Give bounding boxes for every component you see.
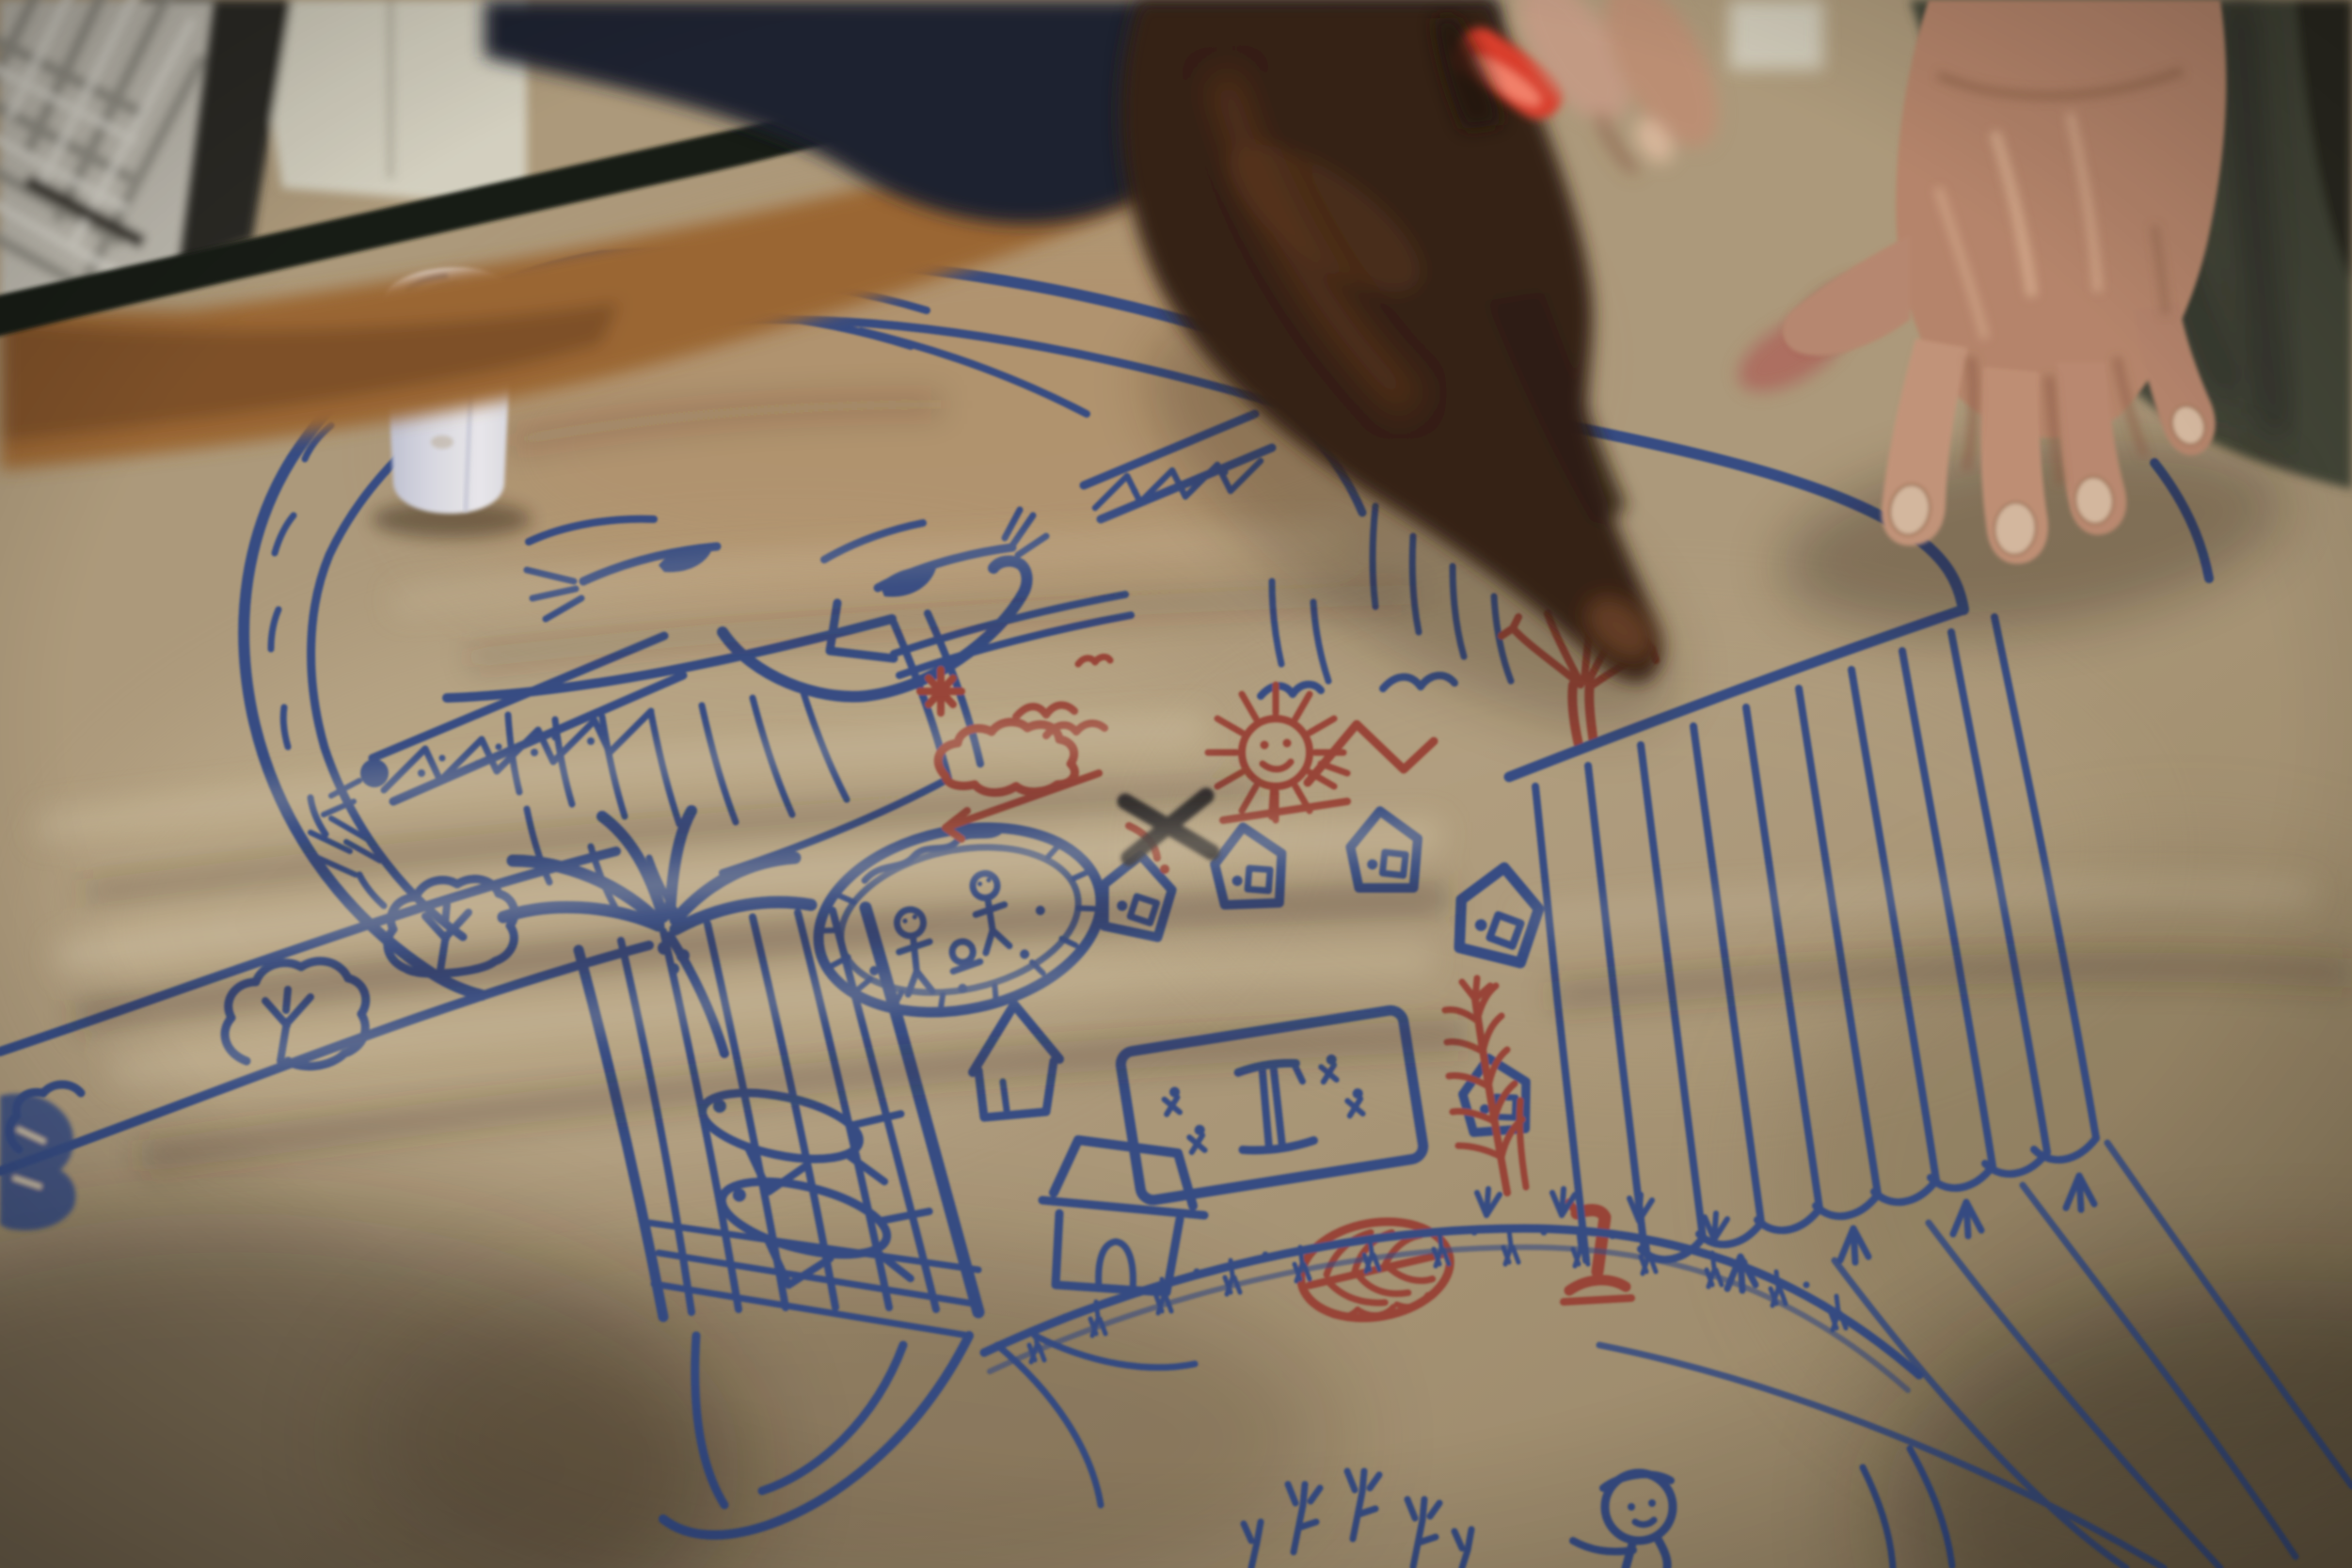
photo-stage: A large sheet of brown kraft paper lies … bbox=[0, 0, 2352, 1568]
warm-tint bbox=[0, 0, 2352, 1568]
body-map-photo: Hands over a community body-map drawing … bbox=[0, 0, 2352, 1568]
